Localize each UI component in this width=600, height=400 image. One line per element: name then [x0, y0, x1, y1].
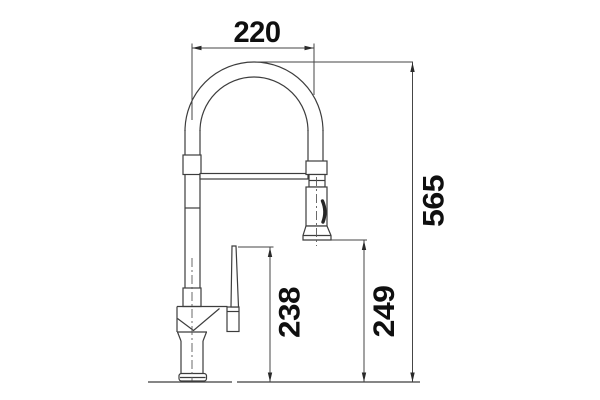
spray-head [303, 161, 331, 246]
arrow-left [192, 46, 202, 50]
arrow-up [268, 248, 272, 258]
drawing-canvas: 220 565 238 249 [0, 0, 600, 400]
dimension-value-spout-width: 220 [234, 16, 281, 49]
arrow-down [268, 373, 272, 383]
dimension-spout-width: 220 [192, 16, 314, 120]
dimension-handle-height: 238 [238, 247, 307, 382]
riser-collar-upper [183, 155, 201, 175]
drop-tube [308, 130, 323, 161]
arrow-up [410, 63, 414, 73]
arrow-down [362, 373, 366, 383]
faucet-dimension-drawing: 220 565 238 249 [0, 0, 600, 400]
support-arm [200, 174, 308, 180]
body-chevron [178, 309, 220, 331]
arrow-right [305, 46, 315, 50]
dimension-value-spray-height: 249 [368, 286, 401, 338]
faucet-body [177, 246, 239, 381]
spray-collar [306, 161, 327, 175]
dimension-value-handle-height: 238 [274, 287, 307, 338]
arrow-down [410, 373, 414, 383]
dimension-value-total-height: 565 [418, 175, 451, 227]
arrow-up [362, 241, 366, 251]
cartridge-cap [227, 307, 239, 332]
spout-arc-outer [185, 62, 323, 131]
dimension-spray-height: 249 [332, 240, 402, 382]
spray-nozzle-flare [303, 226, 331, 240]
handle-lever [231, 246, 239, 307]
spout-arc-inner [200, 77, 308, 131]
